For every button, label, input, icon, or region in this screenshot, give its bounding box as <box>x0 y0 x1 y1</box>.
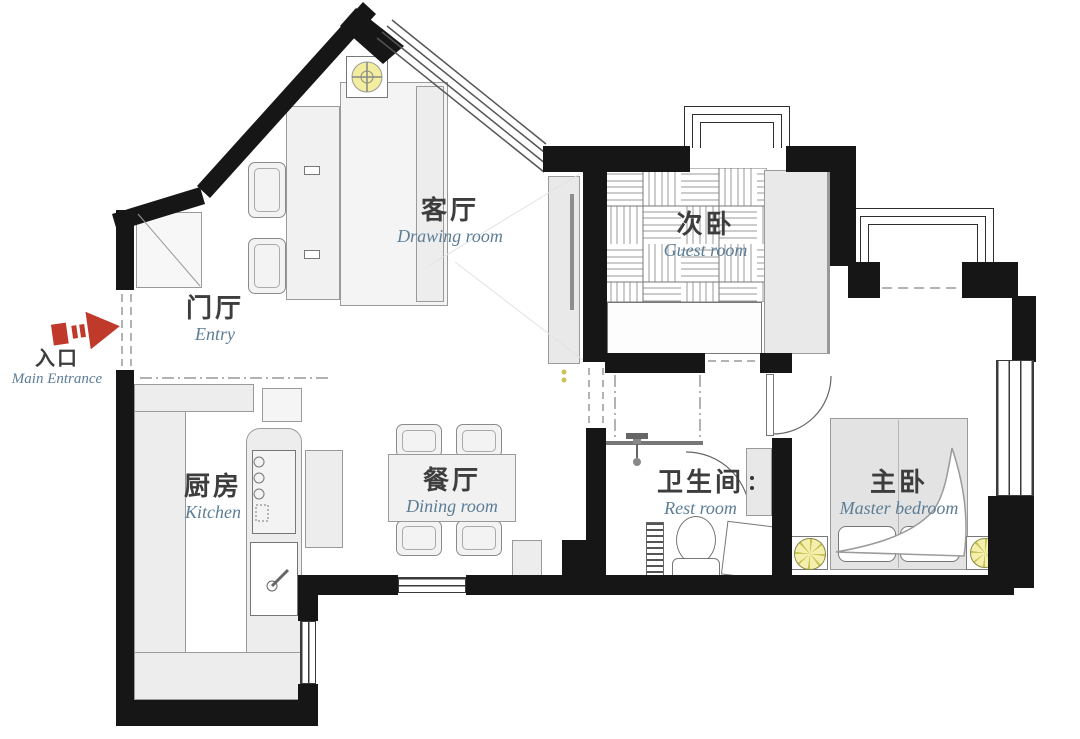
room-name-cn: 卫生间 <box>628 468 773 498</box>
master-bay-window <box>868 224 978 264</box>
floor-plan: 客厅 Drawing room 门厅 Entry 入口 Main Entranc… <box>0 0 1080 739</box>
master-door-arc <box>773 376 831 434</box>
wall <box>792 575 1014 595</box>
room-name-cn: 客厅 <box>365 196 535 226</box>
wall <box>772 438 792 578</box>
room-name-en: Guest room <box>618 240 793 261</box>
room-label-kitchen: 厨房 Kitchen <box>148 472 278 523</box>
closet-diagonal <box>138 214 200 286</box>
hall-opening-dashes <box>589 368 603 424</box>
wall <box>1012 296 1036 362</box>
room-name-en: Entry <box>150 324 280 345</box>
room-name-cn: 入口 <box>0 348 114 371</box>
ceiling-lamp-icon <box>352 62 382 92</box>
room-name-en: Drawing room <box>365 226 535 247</box>
shower-icon <box>626 433 648 466</box>
sink-faucet <box>267 570 288 591</box>
room-name-en: Main Entrance <box>0 371 114 388</box>
room-label-master-bedroom: 主卧 Master bedroom <box>806 468 992 519</box>
room-label-dining-room: 餐厅 Dining room <box>386 466 518 517</box>
window <box>300 621 316 684</box>
tv-dot <box>562 378 567 383</box>
tv-dot <box>562 370 567 375</box>
window <box>398 577 466 593</box>
plan-linework <box>0 0 1080 739</box>
master-door-leaf <box>766 374 774 436</box>
room-label-main-entrance: 入口 Main Entrance <box>0 348 114 388</box>
room-name-cn: 餐厅 <box>386 466 518 496</box>
room-name-en: Dining room <box>386 496 518 517</box>
room-name-en: Rest room <box>628 498 773 519</box>
room-name-cn: 厨房 <box>148 472 278 502</box>
wall <box>760 353 792 373</box>
wall <box>562 540 588 578</box>
window <box>377 20 546 172</box>
room-name-cn: 主卧 <box>806 468 992 498</box>
room-label-guest-room: 次卧 Guest room <box>618 210 793 261</box>
room-name-en: Master bedroom <box>806 498 992 519</box>
wall <box>466 575 792 595</box>
wall <box>830 146 856 266</box>
room-label-entry: 门厅 Entry <box>150 294 280 345</box>
wall-lamp-icon <box>794 538 826 570</box>
wall <box>116 700 318 726</box>
wall <box>116 210 134 290</box>
wall <box>848 262 880 298</box>
wall <box>962 262 1018 298</box>
wall <box>316 575 398 595</box>
room-name-en: Kitchen <box>148 502 278 523</box>
guest-bay-window <box>700 122 774 148</box>
entry-door-dashes <box>122 294 131 366</box>
window <box>996 360 1034 496</box>
wall <box>298 575 318 621</box>
hallway-dashdot <box>615 375 700 438</box>
room-label-rest-room: 卫生间 Rest room <box>628 468 773 519</box>
wall <box>116 370 134 712</box>
wall <box>664 146 690 172</box>
wall <box>786 146 830 172</box>
room-name-cn: 门厅 <box>150 294 280 324</box>
room-label-drawing-room: 客厅 Drawing room <box>365 196 535 247</box>
room-name-cn: 次卧 <box>618 210 793 240</box>
wall <box>586 428 606 578</box>
wall <box>298 684 318 726</box>
wall <box>583 168 607 362</box>
wall <box>988 496 1034 588</box>
wall <box>605 353 705 373</box>
